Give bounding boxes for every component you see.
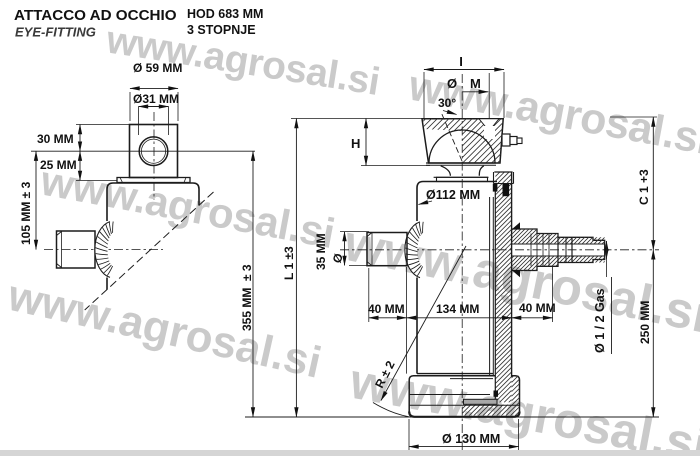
svg-text:25 MM: 25 MM bbox=[40, 158, 77, 172]
svg-text:C 1 +3: C 1 +3 bbox=[637, 169, 651, 205]
svg-text:L 1 ±3: L 1 ±3 bbox=[282, 246, 296, 280]
svg-text:105 MM ± 3: 105 MM ± 3 bbox=[19, 181, 33, 245]
svg-text:M: M bbox=[470, 76, 481, 91]
svg-text:Ø 1 / 2 Gas: Ø 1 / 2 Gas bbox=[593, 288, 607, 353]
svg-text:40 MM: 40 MM bbox=[368, 302, 405, 316]
svg-text:35 MM: 35 MM bbox=[314, 233, 328, 270]
svg-text:355 MM ± 3: 355 MM ± 3 bbox=[240, 264, 254, 331]
svg-text:HOD 683 MM: HOD 683 MM bbox=[187, 7, 263, 21]
svg-text:30 MM: 30 MM bbox=[37, 132, 74, 146]
svg-text:www.agrosal.si: www.agrosal.si bbox=[3, 271, 326, 388]
svg-text:ATTACCO AD OCCHIO: ATTACCO AD OCCHIO bbox=[14, 7, 177, 24]
svg-text:134 MM: 134 MM bbox=[436, 302, 479, 316]
svg-text:Ø: Ø bbox=[447, 76, 457, 91]
svg-text:3 STOPNJE: 3 STOPNJE bbox=[187, 23, 256, 37]
svg-text:Ø 130 MM: Ø 130 MM bbox=[442, 432, 500, 446]
svg-text:Ø31 MM: Ø31 MM bbox=[133, 92, 179, 106]
svg-text:I: I bbox=[459, 54, 463, 69]
svg-text:30°: 30° bbox=[438, 96, 456, 110]
svg-text:250 MM: 250 MM bbox=[638, 301, 652, 344]
svg-text:Ø112 MM: Ø112 MM bbox=[426, 188, 480, 202]
svg-text:Ø 59 MM: Ø 59 MM bbox=[133, 61, 182, 75]
svg-text:www.agrosal.si: www.agrosal.si bbox=[345, 353, 700, 456]
svg-text:EYE-FITTING: EYE-FITTING bbox=[15, 25, 96, 40]
svg-text:H: H bbox=[351, 136, 360, 151]
svg-text:40 MM: 40 MM bbox=[519, 301, 556, 315]
svg-text:www.agrosal.si: www.agrosal.si bbox=[36, 156, 338, 257]
